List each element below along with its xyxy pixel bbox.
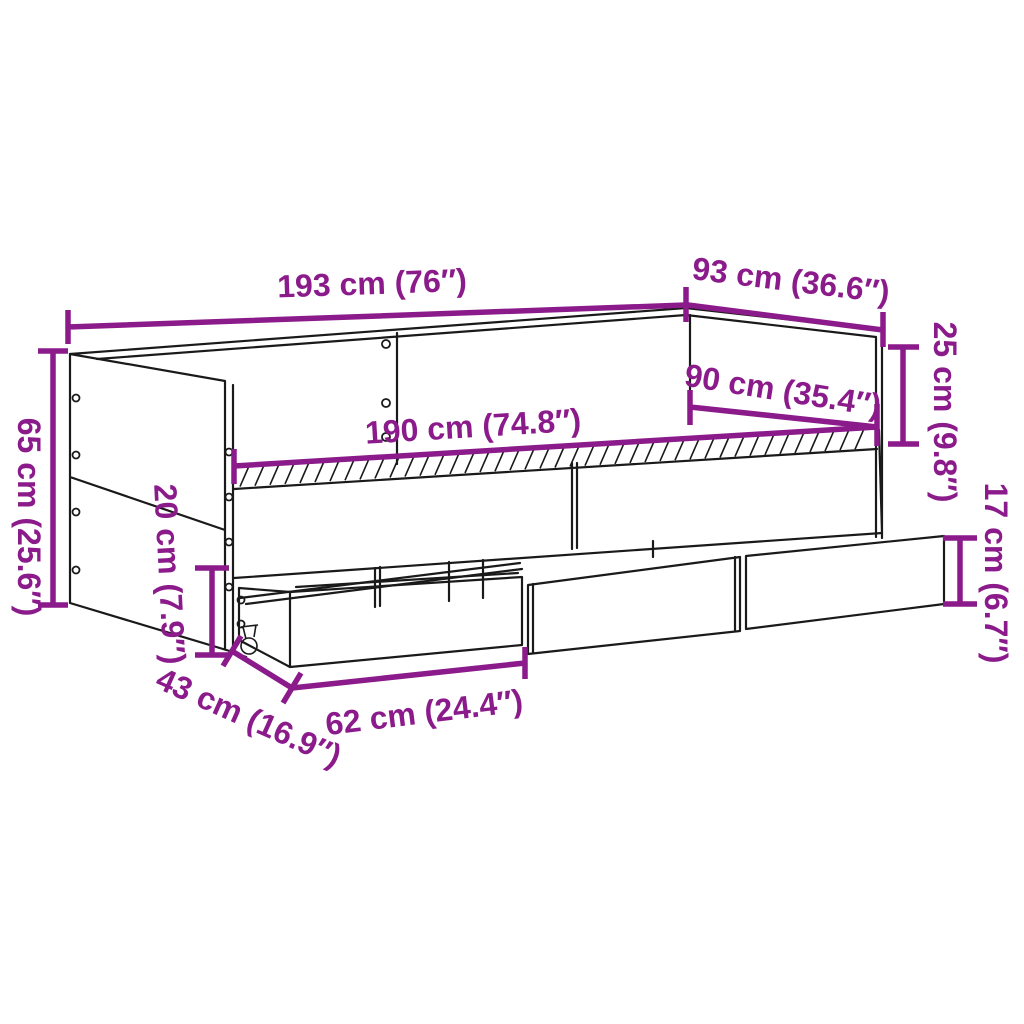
dimension-drawer-height-label: 17 cm (6.7″)	[978, 483, 1014, 664]
drawer-right	[746, 536, 944, 629]
diagram-canvas: 193 cm (76″) 93 cm (36.6″) 25 cm (9.8″) …	[0, 0, 1024, 1024]
drawer-middle	[528, 557, 740, 654]
dimension-side-panel-height: 65 cm (25.6″)	[11, 351, 68, 616]
dimension-drawer-width: 62 cm (24.4″)	[292, 647, 525, 742]
dimension-drawer-width-label: 62 cm (24.4″)	[323, 682, 524, 742]
dimension-drawer-height: 17 cm (6.7″)	[943, 483, 1014, 664]
dimension-side-panel-height-label: 65 cm (25.6″)	[11, 418, 47, 617]
slat-platform-edge	[234, 449, 877, 489]
daybed-line-drawing	[70, 308, 944, 667]
dimension-underbed-clearance-label: 20 cm (7.9″)	[147, 483, 192, 665]
dimension-backrest-height: 25 cm (9.8″)	[888, 322, 963, 503]
dimension-underbed-clearance: 20 cm (7.9″)	[147, 483, 229, 665]
dimension-drawer-pullout-label: 43 cm (16.9″)	[151, 660, 347, 774]
dimension-backrest-height-label: 25 cm (9.8″)	[927, 322, 963, 503]
dimension-mattress-width: 90 cm (35.4″)	[682, 357, 884, 427]
dimension-total-depth: 93 cm (36.6″)	[688, 250, 892, 347]
drawer-pulled-out	[239, 573, 522, 667]
dimension-total-length-label: 193 cm (76″)	[277, 262, 468, 305]
daybed-dimension-diagram: 193 cm (76″) 93 cm (36.6″) 25 cm (9.8″) …	[0, 0, 1024, 1024]
dimension-total-depth-label: 93 cm (36.6″)	[690, 250, 891, 310]
caster-wheel	[241, 625, 258, 654]
dimension-mattress-width-label: 90 cm (35.4″)	[682, 357, 884, 424]
